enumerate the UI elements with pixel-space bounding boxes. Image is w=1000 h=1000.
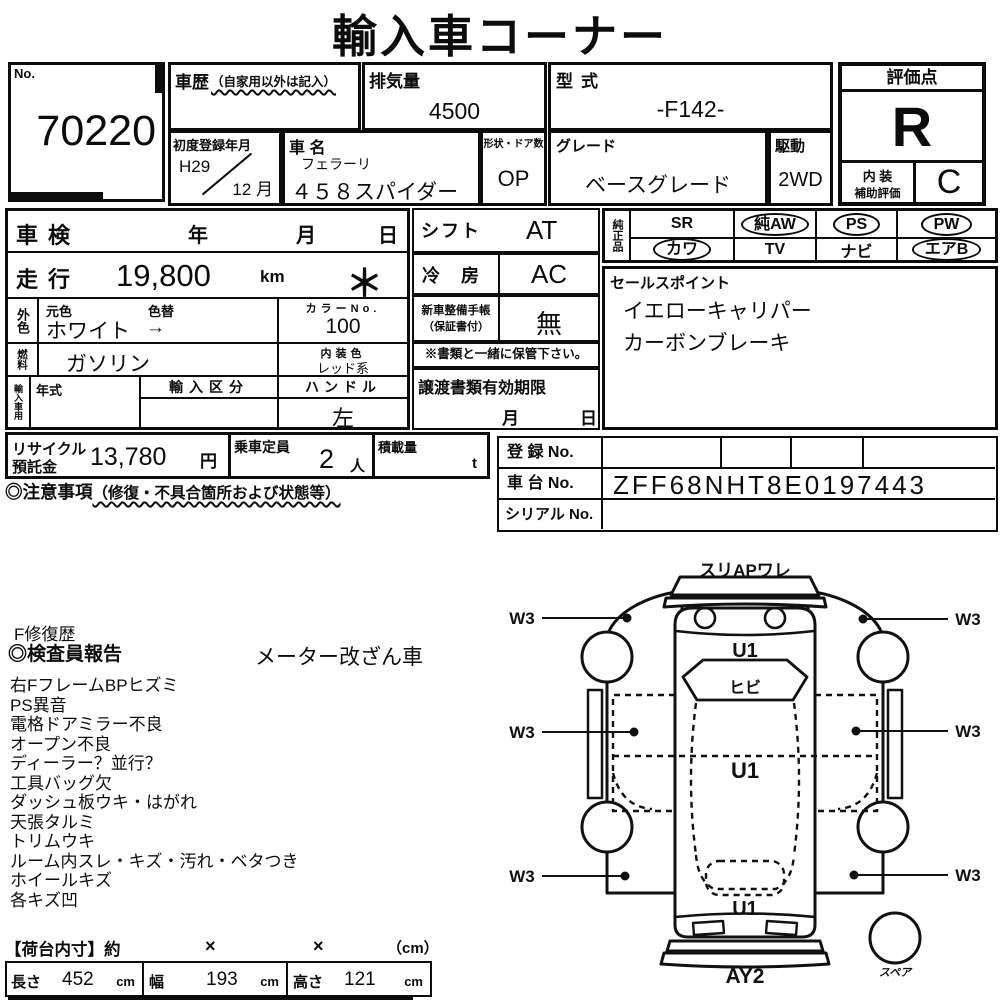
interior-score-row: 内 装 補助評価 C [842, 160, 982, 202]
mileage-label: 走行 [16, 262, 80, 294]
meter-tamper-note: メーター改ざん車 [255, 641, 423, 671]
interior-score-label2: 補助評価 [842, 185, 913, 201]
inspection-day-label: 日 [378, 219, 398, 248]
load-capacity-unit: t [472, 455, 477, 472]
car-make: フェラーリ [301, 154, 371, 174]
color-no-value: 100 [279, 315, 407, 339]
first-registration-month: 12 月 [232, 175, 273, 200]
sales-point-line: イエローキャリパー [623, 295, 812, 325]
w3-mark-top-right: W3 [955, 610, 981, 629]
finding-item: ダッシュ板ウキ・はがれ [10, 793, 299, 813]
color-no-label: カラーNo. [279, 300, 407, 316]
registration-no-row: 登 録 No. [499, 438, 995, 467]
inspection-label: 車検 [16, 218, 80, 250]
front-wing-lower [664, 598, 826, 607]
spare-tire-icon [870, 913, 920, 963]
w3-mark-top-left: W3 [509, 609, 535, 628]
model-code-value: -F142- [551, 96, 830, 123]
grade-box: グレード ベースグレード [548, 130, 768, 206]
drive-label: 駆動 [775, 135, 805, 156]
fuel-value: ガソリン [66, 348, 150, 378]
history-label: 車歴 [175, 68, 209, 93]
cell-divider [790, 438, 792, 467]
recycle-value: 13,780 [90, 443, 166, 472]
drive-value: 2WD [771, 169, 830, 192]
bumper-mark: AY2 [726, 965, 765, 988]
keep-note-text: ※書類と一緒に保管下さい。 [425, 347, 588, 361]
equip-airbag: エアB [912, 238, 982, 261]
chassis-no-value: ZFF68NHT8E0197443 [613, 470, 927, 501]
arrow-icon: → [146, 317, 165, 339]
exterior-color-value: ホワイト [46, 315, 130, 345]
cargo-width-value: 193 [206, 969, 238, 991]
genuine-parts-grid: SR 純AW PS PW カワ TV ナビ エアB [631, 211, 995, 260]
rear-mark: U1 [732, 898, 758, 920]
registration-no-label: 登 録 No. [499, 438, 603, 467]
equip-alloy-wheels: 純AW [741, 213, 809, 236]
shape-doors-value: OP [483, 166, 544, 192]
shape-doors-box: 形状・ドア数 OP [480, 130, 547, 206]
shift-label: シフト [421, 217, 481, 243]
exterior-color-label: 外色 [8, 299, 39, 342]
vehicle-detail-table: 車検 年 月 日 走行 19,800 km ＊ 外色 元色 色替 ホワイト → … [5, 208, 410, 430]
grade-value: ベースグレード [551, 169, 765, 199]
drive-box: 駆動 2WD [768, 130, 833, 206]
cargo-length-label: 長さ [11, 971, 41, 992]
caution-label: ◎注意事項 [5, 482, 93, 502]
w3-mark-bottom-right: W3 [955, 866, 981, 885]
serial-no-row: シリアル No. [499, 498, 995, 529]
inspection-row: 車検 年 月 日 [8, 211, 407, 251]
finding-item: 工具バッグ欠 [10, 774, 299, 794]
inspection-month-label: 月 [296, 219, 316, 248]
cargo-length-value: 452 [62, 969, 94, 991]
score-label: 評価点 [842, 66, 982, 92]
first-registration-box: 初度登録年月 H29 12 月 [168, 130, 282, 206]
transfer-docs-box: 譲渡書類有効期限 月 日 [412, 368, 600, 430]
left-front-wheel-icon [582, 632, 632, 682]
lot-number-value: 70220 [36, 107, 156, 156]
finding-item: 電格ドアミラー不良 [10, 715, 299, 735]
model-year-label: 年式 [36, 380, 62, 399]
lot-number-box: No. 70220 [8, 62, 165, 202]
cargo-width-label: 幅 [149, 971, 164, 992]
load-capacity-box: 積載量 t [372, 432, 490, 479]
fuel-label: 燃料 [8, 344, 39, 375]
transfer-docs-label: 譲渡書類有効期限 [418, 374, 546, 398]
car-name-box: 車 名 フェラーリ ４５８スパイダー [282, 130, 481, 206]
hood-mark: U1 [732, 640, 758, 662]
auction-sheet: 輸入車コーナー No. 70220 車歴 （自家用以外は記入） 排気量 4500… [0, 0, 1000, 1000]
mileage-unit: km [260, 267, 285, 287]
equip-navi: ナビ [840, 238, 872, 262]
cargo-height-label: 高さ [293, 971, 323, 992]
shape-doors-label: 形状・ドア数 [483, 135, 544, 150]
equip-pw: PW [921, 213, 973, 236]
history-note: （自家用以外は記入） [211, 71, 336, 90]
finding-item: ディーラー？並行？ [10, 754, 299, 774]
cargo-dim-table: 長さ 452 cm 幅 193 cm 高さ 121 cm [5, 961, 432, 997]
equip-ps: PS [833, 213, 880, 236]
history-box: 車歴 （自家用以外は記入） [168, 62, 361, 131]
multiply-sign: × [205, 936, 216, 957]
score-value: R [842, 94, 982, 160]
cargo-height-unit: cm [404, 974, 423, 989]
lot-number-label: No. [14, 66, 35, 81]
aircon-box: 冷 房 AC [412, 253, 600, 295]
chassis-no-row: 車 台 No. ZFF68NHT8E0197443 [499, 467, 995, 498]
spare-label: スペア [879, 967, 913, 979]
mileage-row: 走行 19,800 km ＊ [8, 251, 407, 297]
recycle-label2: 預託金 [12, 456, 57, 477]
cell-divider [720, 438, 722, 467]
sales-points-label: セールスポイント [610, 272, 730, 293]
finding-item: 右FフレームBPヒズミ [10, 676, 299, 696]
finding-item: 各キズ凹 [10, 891, 299, 911]
finding-item: ルーム内スレ・キズ・汚れ・ベタつき [10, 852, 299, 872]
right-front-wheel-icon [858, 632, 908, 682]
load-capacity-label: 積載量 [378, 437, 417, 456]
corner-tick-icon [155, 65, 162, 93]
displacement-label: 排気量 [369, 67, 420, 92]
rear-bumper-upper [667, 941, 823, 951]
aircon-value: AC [500, 259, 598, 290]
interior-score-value: C [916, 163, 982, 201]
score-box: 評価点 R 内 装 補助評価 C [838, 62, 986, 206]
cutoff-box-edge [8, 997, 413, 1000]
seating-label: 乗車定員 [234, 437, 290, 457]
seating-unit: 人 [350, 455, 365, 476]
serial-no-label: シリアル No. [499, 500, 603, 529]
aircon-label: 冷 房 [422, 262, 487, 288]
registration-block: 登 録 No. 車 台 No. ZFF68NHT8E0197443 シリアル N… [497, 436, 998, 532]
cabin-mark: U1 [731, 758, 759, 783]
finding-item: 天張タルミ [10, 813, 299, 833]
service-book-box: 新車整備手帳 （保証書付） 無 [412, 295, 600, 342]
left-rocker-strip [588, 690, 602, 798]
corner-tick-icon [11, 192, 103, 199]
finding-item: ホイールキズ [10, 871, 299, 891]
service-book-label: 新車整備手帳 [414, 302, 498, 318]
cargo-dim-unit-note: （cm） [387, 937, 439, 958]
cargo-height-cell: 高さ 121 cm [288, 963, 430, 995]
cargo-height-value: 121 [344, 969, 376, 991]
sales-point-line: カーボンブレーキ [623, 327, 790, 357]
finding-item: オープン不良 [10, 735, 299, 755]
genuine-parts-box: 純正品 SR 純AW PS PW カワ TV ナビ エアB [602, 208, 998, 263]
import-division-label: 輸入区分 [141, 377, 277, 399]
equip-leather: カワ [653, 238, 711, 261]
findings-list: 右FフレームBPヒズミ PS異音 電格ドアミラー不良 オープン不良 ディーラー？… [10, 676, 299, 910]
first-registration-year: H29 [179, 157, 210, 177]
keep-note-strip: ※書類と一緒に保管下さい。 [412, 342, 600, 368]
car-damage-diagram: スリAPワレ U1 ヒビ U1 U1 AY2 W3 W3 W3 W3 W3 W3… [490, 545, 1000, 1000]
cargo-width-cell: 幅 193 cm [144, 963, 288, 995]
transfer-day-label: 日 [580, 404, 597, 429]
import-label: 輸入車用 [8, 377, 31, 427]
exterior-color-row: 外色 元色 色替 ホワイト → カラーNo. 100 [8, 297, 407, 342]
handle-value: 左 [279, 401, 407, 433]
w3-mark-mid-right: W3 [955, 722, 981, 741]
w3-mark-mid-left: W3 [509, 723, 535, 742]
seating-value: 2 [319, 444, 334, 475]
cargo-width-unit: cm [260, 974, 279, 989]
chassis-no-label: 車 台 No. [499, 469, 603, 498]
first-registration-label: 初度登録年月 [173, 135, 251, 154]
car-model: ４５８スパイダー [291, 176, 458, 206]
displacement-value: 4500 [365, 98, 544, 125]
page-title: 輸入車コーナー [0, 0, 1000, 65]
import-row: 輸入車用 年式 輸入区分 ハンドル 左 [8, 375, 407, 427]
equip-sr: SR [671, 215, 693, 233]
inspection-year-label: 年 [188, 219, 208, 248]
inspector-report-title: ◎検査員報告 [8, 639, 122, 666]
cargo-length-unit: cm [116, 974, 135, 989]
cargo-dim-label: 【荷台内寸】約 [5, 936, 121, 960]
finding-item: トリムウキ [10, 832, 299, 852]
model-code-label: 型式 [556, 67, 606, 92]
front-damage-note: スリAPワレ [699, 561, 791, 580]
right-rocker-strip [888, 690, 902, 798]
mileage-value: 19,800 [116, 258, 211, 294]
cell-divider [862, 438, 864, 467]
displacement-box: 排気量 4500 [362, 62, 547, 131]
shift-box: シフト AT [412, 208, 600, 253]
windshield-mark: ヒビ [729, 679, 761, 697]
right-rear-wheel-icon [858, 802, 908, 852]
model-code-box: 型式 -F142- [548, 62, 833, 131]
multiply-sign: × [313, 936, 324, 957]
fuel-row: 燃料 ガソリン 内装色 レッド系 [8, 342, 407, 375]
w3-mark-bottom-left: W3 [509, 867, 535, 886]
grade-label: グレード [556, 135, 616, 156]
sales-points-box: セールスポイント イエローキャリパー カーボンブレーキ [602, 266, 998, 430]
shift-value: AT [526, 215, 557, 246]
caution-line: ◎注意事項（修復・不具合箇所および状態等） [5, 479, 341, 504]
recycle-deposit-box: リサイクル 預託金 13,780 円 [5, 432, 231, 479]
caution-note: （修復・不具合箇所および状態等） [93, 485, 341, 502]
finding-item: PS異音 [10, 696, 299, 716]
equip-tv: TV [765, 241, 785, 259]
interior-score-label: 内 装 [842, 166, 913, 185]
recycle-unit: 円 [200, 447, 217, 472]
genuine-parts-label: 純正品 [605, 211, 631, 260]
transfer-month-label: 月 [502, 404, 519, 429]
left-rear-wheel-icon [582, 802, 632, 852]
service-book-value: 無 [500, 304, 598, 341]
cargo-length-cell: 長さ 452 cm [7, 963, 144, 995]
seating-box: 乗車定員 2 人 [228, 432, 375, 479]
cargo-dim-header: 【荷台内寸】約 × × （cm） [5, 936, 445, 958]
service-book-label2: （保証書付） [414, 318, 498, 334]
handle-label: ハンドル [279, 377, 407, 399]
